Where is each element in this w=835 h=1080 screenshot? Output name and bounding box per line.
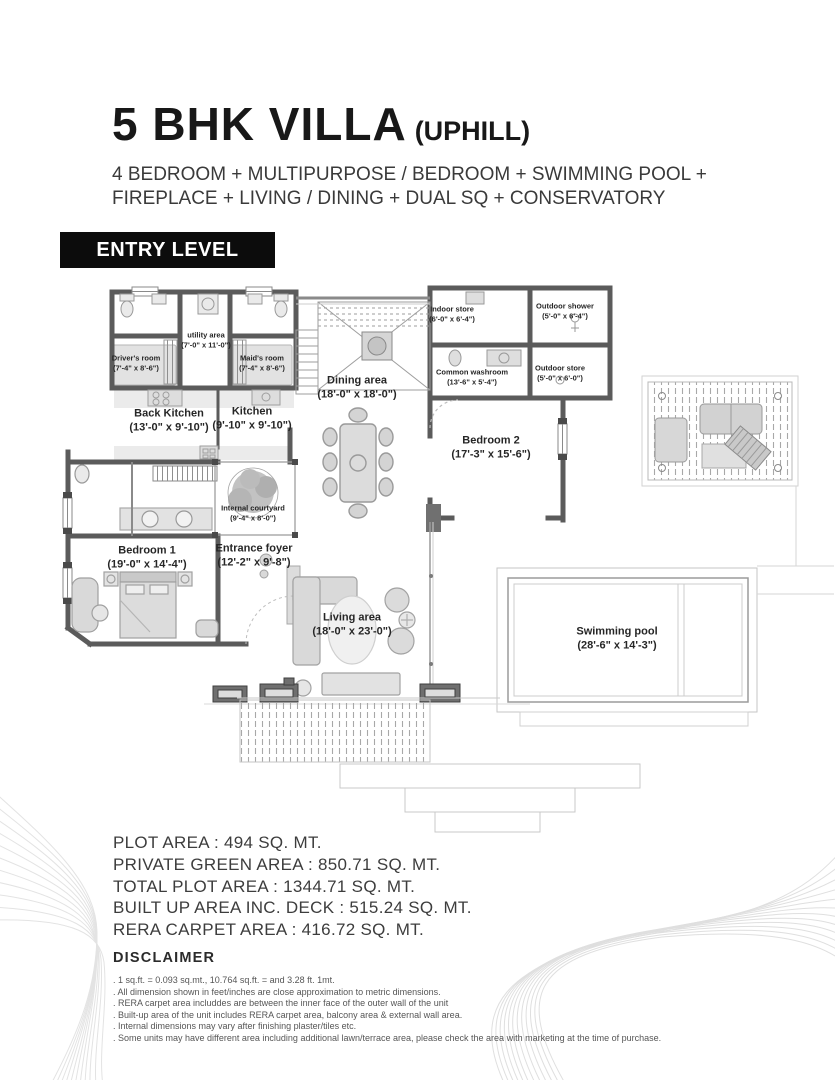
page-title: 5 BHK VILLA(UPHILL) [112, 98, 707, 157]
header: 5 BHK VILLA(UPHILL) 4 BEDROOM + MULTIPUR… [112, 98, 707, 211]
room-label-dining-area: Dining area(18'-0" x 18'-0") [317, 374, 396, 403]
room-label-outdoor-shower: Outdoor shower(5'-0" x 6'-4") [536, 301, 594, 321]
area-line-plot: PLOT AREA : 494 SQ. MT. [113, 832, 472, 854]
swimming-pool [497, 486, 834, 726]
room-label-kitchen: Kitchen(9'-10" x 9'-10") [212, 405, 291, 434]
room-label-maids-room: Maid's room(7'-4" x 8'-6") [239, 353, 285, 373]
room-label-internal-courtyard: Internal courtyard(9'-4" x 8'-0") [221, 503, 285, 523]
room-label-utility-area: utility area(7'-0" x 11'-0") [181, 330, 230, 350]
deck-steps [237, 698, 640, 832]
room-label-drivers-room: Driver's room(7'-4" x 8'-6") [112, 353, 160, 373]
disclaimer-line: . 1 sq.ft. = 0.093 sq.mt., 10.764 sq.ft.… [113, 975, 661, 987]
area-line-built-up: BUILT UP AREA INC. DECK : 515.24 SQ. MT. [113, 897, 472, 919]
subtitle-line-2: FIREPLACE + LIVING / DINING + DUAL SQ + … [112, 187, 707, 211]
disclaimer-line: . Internal dimensions may vary after fin… [113, 1021, 661, 1033]
room-label-common-washroom: Common washroom(13'-6" x 5'-4") [436, 367, 508, 387]
area-line-total-plot: TOTAL PLOT AREA : 1344.71 SQ. MT. [113, 876, 472, 898]
level-banner: ENTRY LEVEL [60, 232, 275, 268]
room-label-bedroom-1: Bedroom 1(19'-0" x 14'-4") [107, 544, 186, 573]
disclaimer-line: . Some units may have different area inc… [113, 1033, 661, 1045]
room-label-swimming-pool: Swimming pool(28'-6" x 14'-3") [576, 625, 657, 654]
area-line-private-green: PRIVATE GREEN AREA : 850.71 SQ. MT. [113, 854, 472, 876]
subtitle-line-1: 4 BEDROOM + MULTIPURPOSE / BEDROOM + SWI… [112, 163, 707, 187]
disclaimer-line: . All dimension shown in feet/inches are… [113, 987, 661, 999]
disclaimer-line: . RERA carpet area includdes are between… [113, 998, 661, 1010]
dining-table-icon [323, 408, 393, 518]
disclaimer: DISCLAIMER . 1 sq.ft. = 0.093 sq.mt., 10… [113, 950, 661, 1044]
subtitle: 4 BEDROOM + MULTIPURPOSE / BEDROOM + SWI… [112, 163, 707, 211]
area-line-rera-carpet: RERA CARPET AREA : 416.72 SQ. MT. [113, 919, 472, 941]
room-label-back-kitchen: Back Kitchen(13'-0" x 9'-10") [129, 407, 208, 436]
title-main: 5 BHK VILLA [112, 98, 407, 150]
internal-courtyard [212, 459, 298, 538]
room-label-indoor-store: Indoor store(6'-0" x 6'-4") [429, 304, 475, 324]
room-label-entrance-foyer: Entrance foyer(12'-2" x 9'-8") [215, 542, 292, 571]
page: 5 BHK VILLA(UPHILL) 4 BEDROOM + MULTIPUR… [0, 0, 835, 1080]
room-label-outdoor-store: Outdoor store(5'-0" x 6'-0") [535, 363, 585, 383]
conservatory-pergola [642, 376, 798, 486]
room-label-bedroom-2: Bedroom 2(17'-3" x 15'-6") [451, 434, 530, 463]
disclaimer-line: . Built-up area of the unit includes RER… [113, 1010, 661, 1022]
title-suffix: (UPHILL) [415, 116, 530, 146]
area-statistics: PLOT AREA : 494 SQ. MT. PRIVATE GREEN AR… [113, 832, 472, 941]
disclaimer-title: DISCLAIMER [113, 950, 661, 966]
room-label-living-area: Living area(18'-0" x 23'-0") [312, 611, 391, 640]
disclaimer-lines: . 1 sq.ft. = 0.093 sq.mt., 10.764 sq.ft.… [113, 975, 661, 1044]
